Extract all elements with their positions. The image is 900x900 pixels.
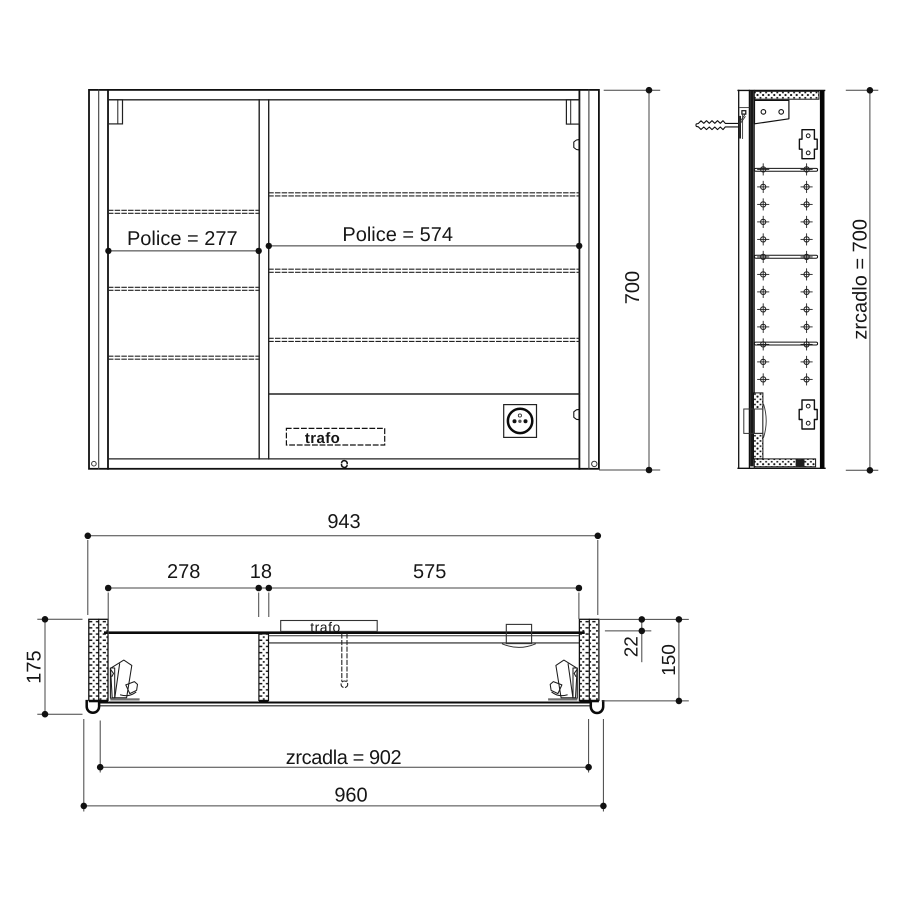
svg-text:zrcadlo = 700: zrcadlo = 700 bbox=[849, 219, 871, 340]
svg-text:575: 575 bbox=[413, 561, 446, 583]
svg-text:18: 18 bbox=[250, 561, 272, 583]
svg-text:zrcadla = 902: zrcadla = 902 bbox=[286, 747, 402, 769]
svg-text:150: 150 bbox=[659, 644, 680, 676]
svg-text:Police = 574: Police = 574 bbox=[342, 224, 453, 246]
svg-text:trafo: trafo bbox=[310, 619, 341, 635]
svg-text:Police = 277: Police = 277 bbox=[127, 228, 238, 250]
svg-text:960: 960 bbox=[334, 784, 367, 806]
svg-text:22: 22 bbox=[621, 636, 642, 657]
svg-text:943: 943 bbox=[327, 511, 360, 533]
svg-text:700: 700 bbox=[622, 271, 644, 304]
svg-text:278: 278 bbox=[167, 561, 200, 583]
svg-text:175: 175 bbox=[23, 650, 45, 683]
svg-text:trafo: trafo bbox=[305, 430, 340, 447]
